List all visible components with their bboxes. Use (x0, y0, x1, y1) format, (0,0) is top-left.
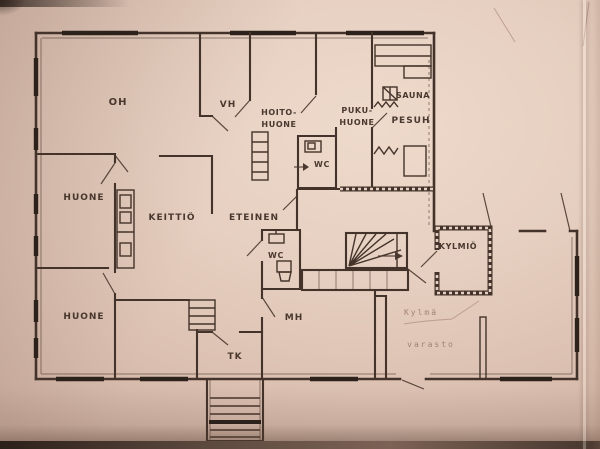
room-label-pukuhuone-line1: PUKU- (341, 106, 372, 115)
floor-plan-drawing: OH VH HOITO- HUONE PUKU- HUONE SAUNA PES… (0, 0, 600, 449)
stairs-direction-arrow-icon (395, 252, 403, 260)
toilet-icon (277, 261, 291, 281)
room-label-wc-lower: WC (268, 251, 284, 260)
sink-icon-upper-wc (305, 141, 321, 152)
kylmio-hatched-walls (437, 228, 490, 293)
internal-stairs (346, 233, 407, 268)
sauna-stove-icon (383, 87, 397, 100)
sauna-partition-hatch (374, 102, 398, 107)
room-label-oh: OH (109, 97, 128, 108)
sauna-benches (375, 45, 431, 78)
room-label-wc-upper: WC (314, 160, 330, 169)
room-label-mh: MH (285, 313, 304, 323)
room-label-pukuhuone-line2: HUONE (339, 118, 374, 127)
room-label-pesuhuone: PESUH (391, 116, 430, 126)
room-label-hoitohuone-line2: HUONE (261, 120, 296, 129)
wardrobe (302, 270, 408, 290)
interior-walls (36, 33, 433, 379)
room-label-vh: VH (220, 100, 237, 110)
room-label-huone-middle: HUONE (63, 193, 104, 203)
water-heater (404, 146, 426, 176)
room-label-huone-lower: HUONE (63, 312, 104, 322)
floor-plan-photo: OH VH HOITO- HUONE PUKU- HUONE SAUNA PES… (0, 0, 600, 449)
faint-marks (404, 2, 589, 324)
room-label-hoitohuone-line1: HOITO- (261, 108, 297, 117)
room-label-kylma: Kylmä (404, 308, 438, 317)
kitchen-counter (117, 190, 134, 268)
room-label-sauna: SAUNA (396, 91, 430, 100)
room-label-tk: TK (227, 352, 242, 362)
door-arrow-icon (294, 163, 309, 171)
room-labels: OH VH HOITO- HUONE PUKU- HUONE SAUNA PES… (63, 91, 477, 362)
shelf-tk (189, 300, 215, 330)
varasto-partition-wall (480, 317, 486, 379)
washing-machine-icon (374, 147, 398, 154)
room-label-varasto: varasto (407, 340, 455, 349)
room-label-eteinen: ETEINEN (229, 213, 279, 223)
exterior-stairs (207, 379, 263, 441)
room-label-kylmio: KYLMIÖ (439, 241, 477, 251)
shelf-hoitohuone (252, 132, 268, 180)
room-label-keittio: KEITTIÖ (149, 212, 196, 223)
sink-icon-lower-wc (269, 229, 284, 243)
